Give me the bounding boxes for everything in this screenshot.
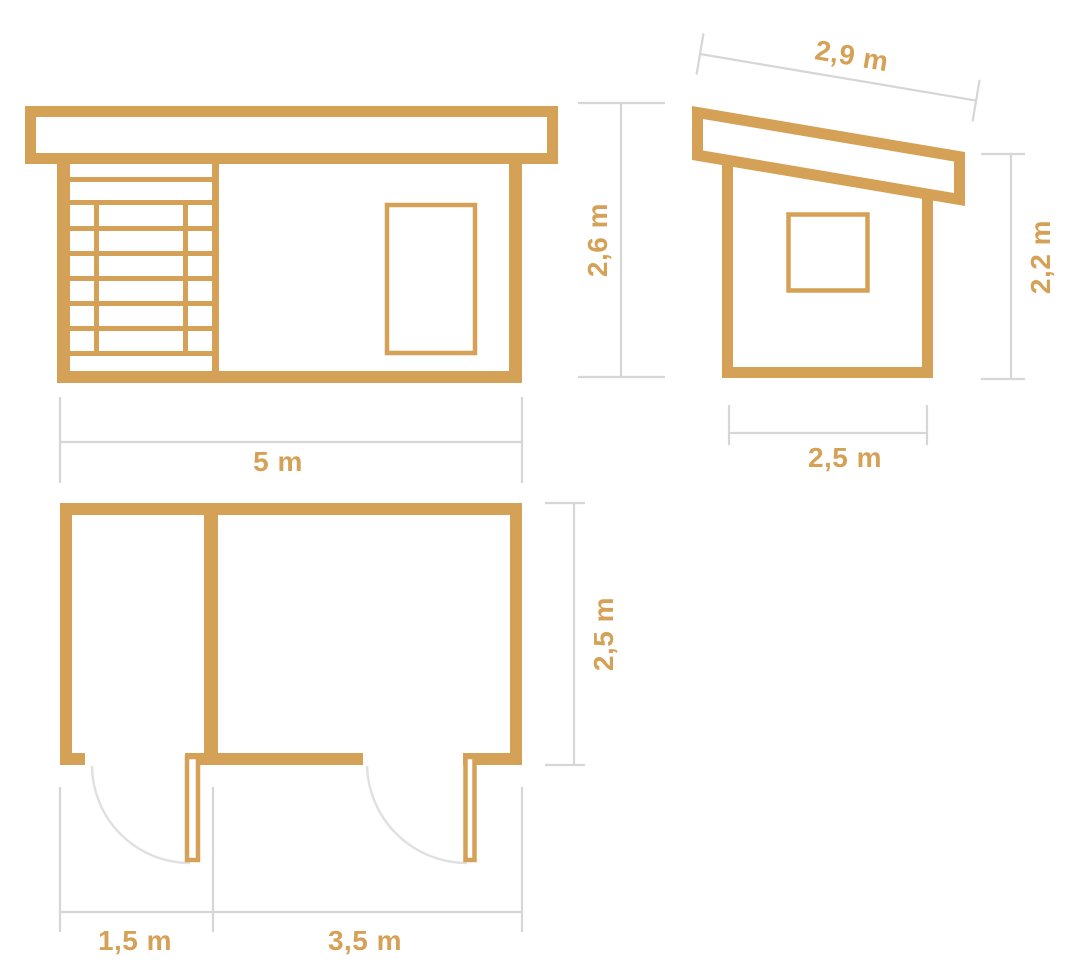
side-elevation-view: 2,9 m 2,2 m 2,5 m	[692, 16, 1056, 473]
plan-depth-dimension: 2,5 m	[545, 503, 619, 765]
plan-wall-top	[60, 503, 522, 515]
door-swing-arc-room1	[92, 766, 190, 863]
slat-bar	[70, 226, 212, 231]
front-elevation-view: 2,6 m 5 m	[31, 103, 666, 483]
side-wall-bottom	[722, 367, 933, 378]
front-width-dimension: 5 m	[60, 397, 522, 483]
plan-depth-label: 2,5 m	[588, 597, 619, 671]
slat-frame-left	[94, 205, 99, 356]
slat-bar	[70, 200, 212, 205]
front-roof	[31, 112, 553, 159]
front-wall-left	[57, 163, 70, 383]
front-wall-bottom	[57, 371, 522, 383]
slat-bar	[70, 301, 212, 306]
front-height-dimension: 2,6 m	[578, 103, 665, 377]
plan-room1-width-label: 1,5 m	[98, 925, 172, 956]
drawing-canvas: 2,6 m 5 m 2,9 m	[0, 0, 1085, 963]
slat-bar	[70, 276, 212, 281]
front-wall-divider	[212, 163, 219, 383]
front-slat-panel	[70, 177, 212, 356]
plan-wall-left	[60, 503, 72, 765]
front-wall-right	[509, 163, 522, 383]
floor-plan-view: 2,5 m 1,5 m 3,5 m	[60, 503, 619, 956]
slat-bar	[70, 326, 212, 331]
plan-width-dimensions: 1,5 m 3,5 m	[60, 787, 522, 956]
slat-frame-right	[183, 205, 188, 356]
plan-wall-right	[510, 503, 522, 765]
plan-wall-divider	[204, 503, 218, 765]
door-leaf-room2	[466, 757, 475, 860]
side-height-dimension: 2,2 m	[981, 154, 1056, 379]
side-roof-label: 2,9 m	[813, 34, 891, 77]
plan-wall-bottom-stub-left	[60, 753, 85, 765]
side-wall-right	[922, 195, 933, 378]
side-roof-dimension: 2,9 m	[697, 16, 983, 122]
door-swing-arc-room2	[367, 766, 467, 863]
side-window	[789, 215, 868, 291]
side-depth-label: 2,5 m	[808, 442, 882, 473]
shed-technical-drawing: 2,6 m 5 m 2,9 m	[0, 0, 1085, 963]
slat-bar	[70, 351, 212, 356]
slat-bar	[70, 177, 212, 182]
front-height-label: 2,6 m	[582, 203, 613, 277]
front-width-label: 5 m	[253, 446, 303, 477]
plan-room2-width-label: 3,5 m	[328, 925, 402, 956]
side-height-label: 2,2 m	[1025, 220, 1056, 294]
front-window	[387, 205, 475, 353]
slat-bar	[70, 251, 212, 256]
door-leaf-room1	[187, 757, 198, 860]
side-wall-left	[722, 160, 733, 378]
side-depth-dimension: 2,5 m	[729, 405, 927, 473]
plan-wall-bottom-middle	[185, 753, 363, 765]
